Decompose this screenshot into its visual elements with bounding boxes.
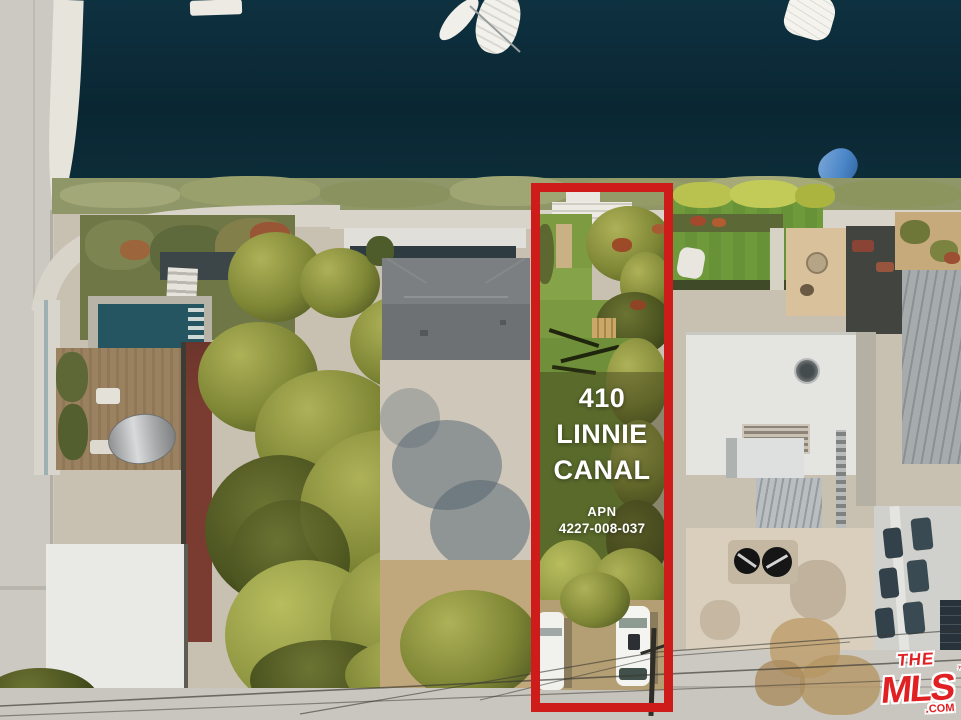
curb-mark	[0, 586, 52, 590]
deck-furniture	[876, 262, 894, 272]
hedge	[795, 184, 835, 208]
deck-furniture	[852, 240, 874, 252]
metal-seam-roof	[902, 268, 961, 464]
lounge-chair	[96, 388, 120, 404]
red-flowers	[120, 240, 150, 260]
hedge	[730, 180, 800, 208]
address-street2: CANAL	[537, 452, 667, 488]
skylight	[906, 559, 929, 593]
tree-canopy	[400, 590, 540, 700]
deck-plants	[56, 352, 88, 402]
bare-tree	[800, 655, 880, 715]
dock	[190, 0, 242, 16]
tree-shadow	[380, 388, 440, 448]
skylight	[878, 567, 899, 599]
rooftop-spa	[794, 358, 820, 384]
fire-bowl	[800, 284, 814, 296]
stone-path	[770, 228, 784, 290]
address-street: LINNIE	[537, 416, 667, 452]
deck-plants	[58, 404, 88, 460]
address-number: 410	[537, 380, 667, 416]
alley	[856, 332, 876, 506]
red-flowers	[690, 216, 706, 226]
mls-word: MLS™	[880, 668, 955, 709]
skylight	[910, 517, 933, 551]
skylight	[882, 527, 903, 559]
skylight	[902, 601, 925, 635]
mls-text: MLS	[879, 666, 955, 711]
roof-ridge	[404, 296, 508, 298]
red-flowers	[944, 252, 960, 264]
shore-shrubs	[830, 180, 961, 208]
roof-stain	[700, 600, 740, 640]
shrub	[900, 220, 930, 244]
shore-shrubs	[320, 180, 450, 208]
hedge	[673, 182, 733, 208]
apn-value: 4227-008-037	[537, 520, 667, 538]
curb-line	[33, 0, 35, 300]
bare-tree	[755, 660, 805, 706]
red-flowers	[712, 218, 726, 227]
mls-watermark: THE MLS™ .COM	[879, 649, 954, 718]
mls-tm: ™	[957, 666, 961, 674]
shore-shrubs	[180, 176, 320, 206]
roof-vent	[420, 330, 428, 336]
roof-edge	[184, 544, 188, 712]
shore-shrubs	[60, 182, 180, 208]
roof-stain	[790, 560, 846, 620]
apn-label: APN	[537, 503, 667, 520]
skylight	[874, 607, 895, 639]
gable-roof-house	[382, 258, 530, 360]
glass-railing	[44, 300, 48, 475]
hvac-box	[726, 438, 804, 478]
property-label: 410 LINNIE CANAL APN 4227-008-037	[537, 380, 667, 538]
tree-shadow	[430, 480, 530, 570]
roof-vent	[500, 320, 506, 325]
patio-table	[806, 252, 828, 274]
aerial-photo: 410 LINNIE CANAL APN 4227-008-037 THE ML…	[0, 0, 961, 720]
